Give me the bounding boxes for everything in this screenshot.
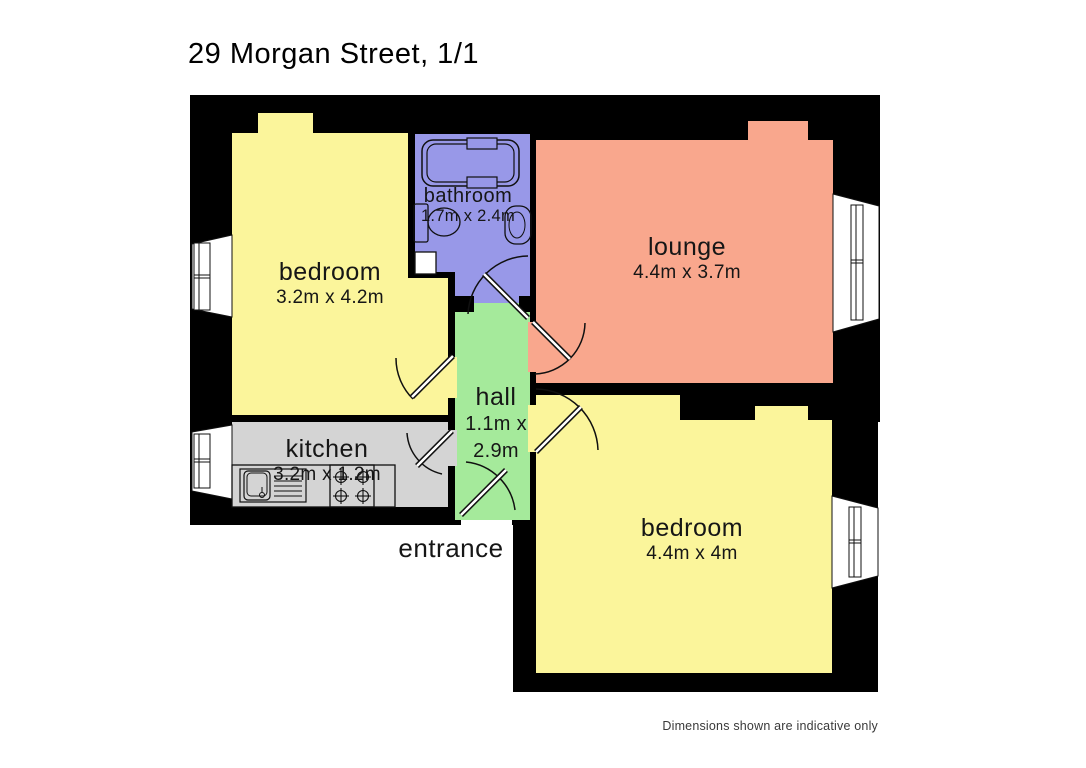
page-title: 29 Morgan Street, 1/1 xyxy=(188,38,479,71)
entrance-label: entrance xyxy=(398,533,503,564)
window-lounge-right xyxy=(833,194,879,332)
door-opening-lounge xyxy=(528,322,538,372)
window-bedroom-front-left xyxy=(192,235,232,317)
entrance-opening xyxy=(461,520,512,529)
room-bedroom-rear xyxy=(536,395,832,673)
floor-plan-page: 29 Morgan Street, 1/1 bedroom 3.2m x 4.2… xyxy=(0,0,1086,768)
room-lounge xyxy=(536,140,833,383)
window-kitchen-left xyxy=(192,425,232,499)
window-tab-lounge xyxy=(748,121,808,142)
door-opening-bedroom-rear xyxy=(528,405,538,452)
floor-plan-drawing xyxy=(0,0,1086,768)
shower-tray-icon xyxy=(415,252,436,274)
window-tab-bedroom-front xyxy=(258,113,313,135)
window-tab-bedroom-rear xyxy=(755,406,808,422)
room-hall xyxy=(455,303,530,520)
window-bedroom-rear-right xyxy=(832,496,878,588)
disclaimer-note: Dimensions shown are indicative only xyxy=(662,719,878,733)
